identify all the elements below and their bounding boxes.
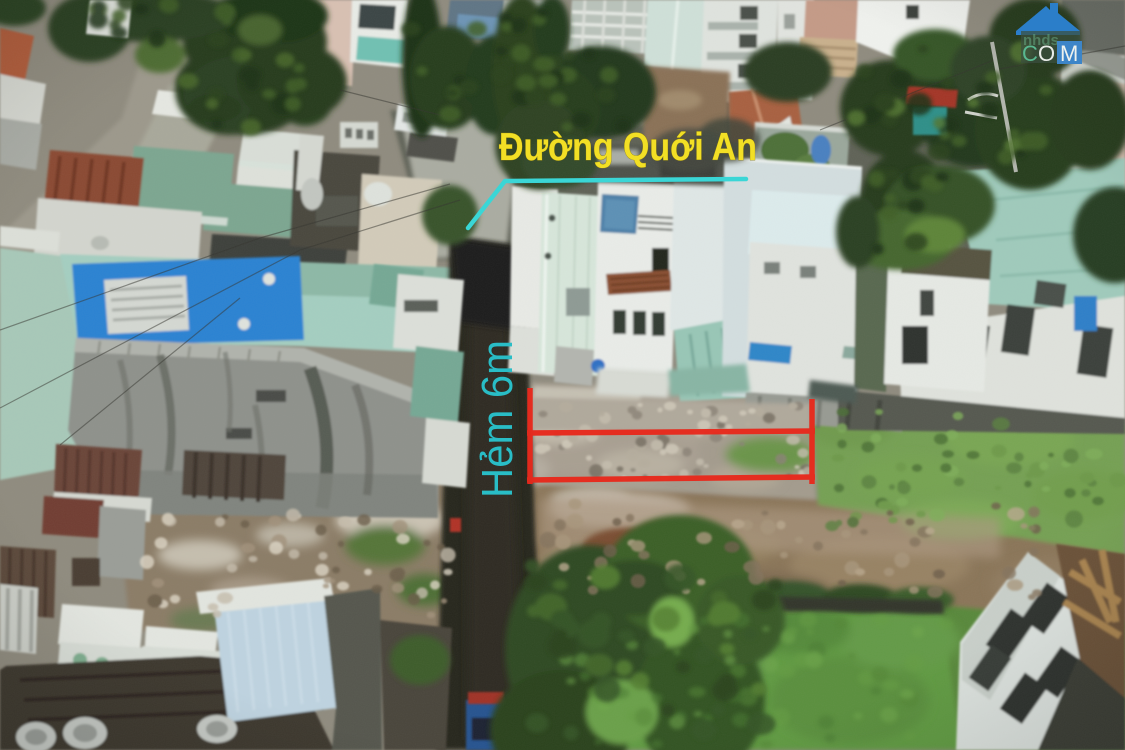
- svg-text:O: O: [1038, 41, 1055, 66]
- svg-text:M: M: [1060, 41, 1078, 66]
- svg-text:Đường Quới An: Đường Quới An: [499, 126, 757, 169]
- svg-text:Hẻm 6m: Hẻm 6m: [473, 340, 522, 498]
- svg-text:C: C: [1022, 41, 1038, 66]
